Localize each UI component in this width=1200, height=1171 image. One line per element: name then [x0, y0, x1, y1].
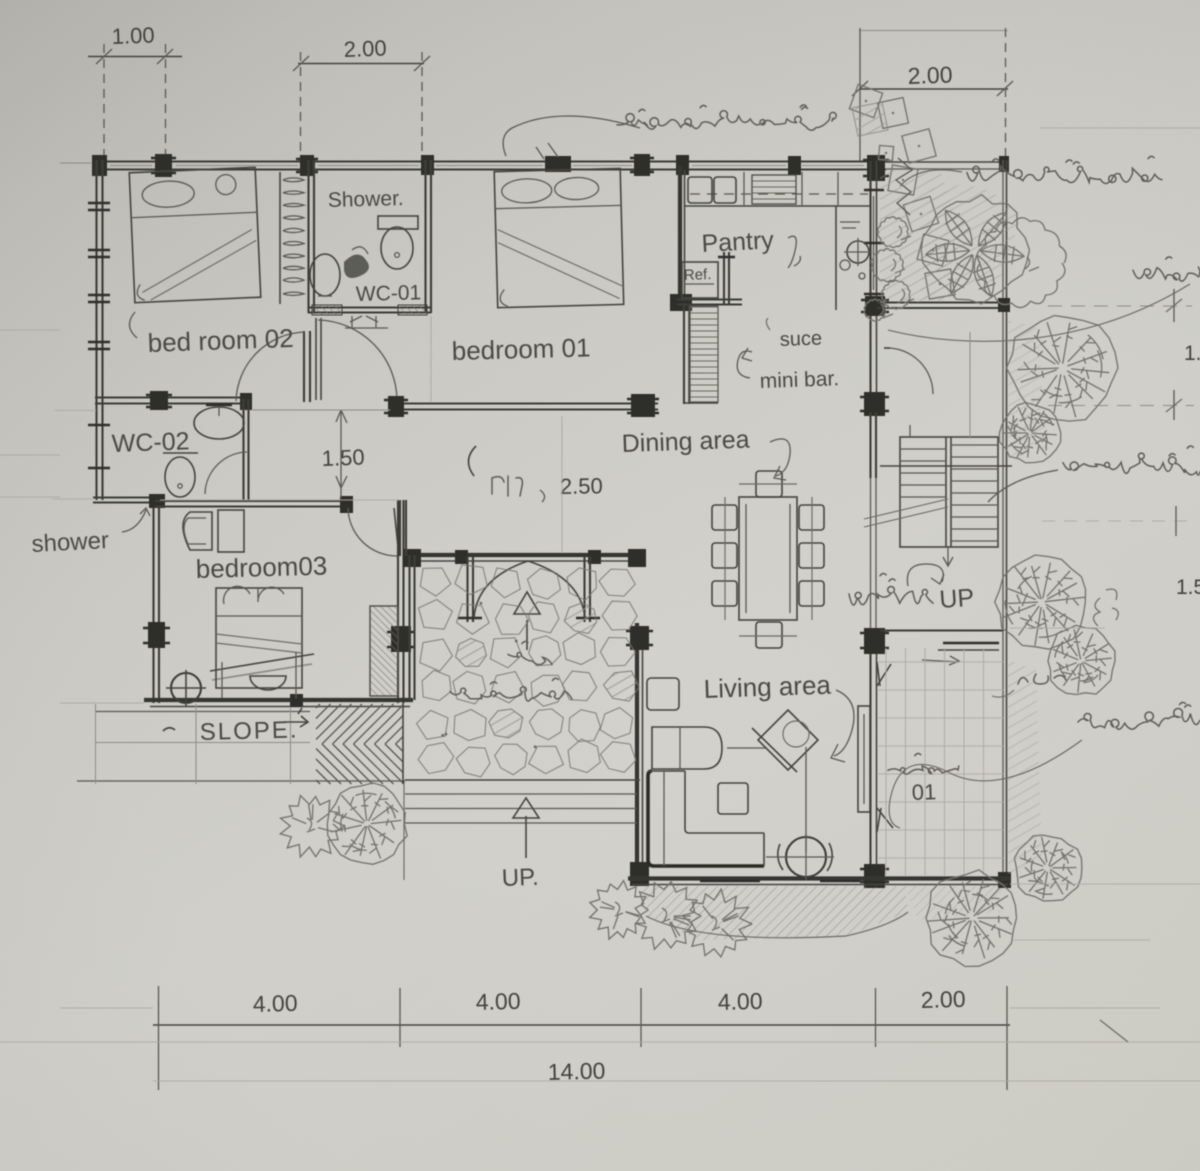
svg-text:shower: shower: [31, 527, 110, 558]
svg-text:bedroom03: bedroom03: [195, 551, 327, 584]
svg-text:bed room 02: bed room 02: [147, 323, 294, 358]
svg-text:WC-01: WC-01: [356, 281, 422, 306]
svg-text:Shower.: Shower.: [328, 187, 404, 212]
svg-text:Ref.: Ref.: [684, 266, 712, 284]
svg-text:1.5: 1.5: [1184, 342, 1200, 365]
svg-text:bedroom 01: bedroom 01: [451, 332, 591, 366]
svg-text:SLOPE.: SLOPE.: [199, 716, 298, 746]
svg-text:4.00: 4.00: [475, 988, 520, 1015]
svg-text:4.00: 4.00: [717, 988, 762, 1015]
svg-text:2.50: 2.50: [560, 473, 603, 499]
svg-text:mini bar.: mini bar.: [759, 367, 839, 393]
svg-text:1.00: 1.00: [111, 23, 155, 49]
svg-text:UP.: UP.: [501, 864, 539, 892]
svg-text:01: 01: [911, 779, 936, 805]
svg-text:Living area: Living area: [703, 670, 832, 704]
svg-text:1.50: 1.50: [321, 445, 365, 471]
svg-text:2.00: 2.00: [343, 36, 387, 62]
svg-text:4.00: 4.00: [252, 990, 297, 1017]
svg-text:UP: UP: [938, 584, 975, 614]
svg-text:Pantry: Pantry: [701, 226, 775, 258]
svg-text:2.00: 2.00: [920, 986, 965, 1013]
svg-text:Dining area: Dining area: [621, 426, 750, 458]
svg-text:1.5: 1.5: [1176, 576, 1200, 599]
svg-text:suce: suce: [779, 328, 822, 351]
svg-text:2.00: 2.00: [907, 61, 953, 89]
